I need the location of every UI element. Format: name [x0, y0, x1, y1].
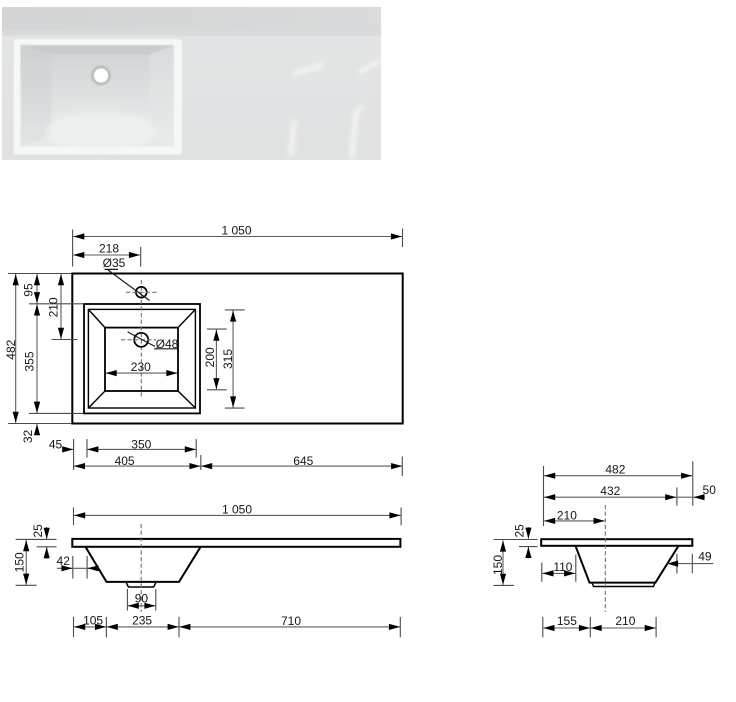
svg-text:230: 230: [131, 360, 151, 374]
svg-text:25: 25: [31, 524, 45, 538]
svg-text:355: 355: [22, 351, 36, 371]
svg-text:210: 210: [615, 614, 635, 628]
svg-text:432: 432: [600, 484, 620, 498]
svg-text:32: 32: [21, 430, 35, 444]
svg-text:Ø48: Ø48: [156, 337, 179, 351]
svg-text:42: 42: [57, 554, 71, 568]
svg-text:200: 200: [203, 347, 217, 367]
svg-text:105: 105: [83, 613, 103, 627]
svg-text:235: 235: [132, 613, 152, 627]
svg-text:482: 482: [605, 463, 625, 477]
svg-text:482: 482: [4, 339, 18, 359]
svg-text:150: 150: [13, 552, 27, 572]
svg-text:49: 49: [698, 550, 712, 564]
svg-text:218: 218: [99, 242, 119, 256]
svg-text:315: 315: [221, 349, 235, 369]
svg-text:210: 210: [557, 509, 577, 523]
svg-text:50: 50: [703, 483, 717, 497]
svg-text:90: 90: [135, 591, 149, 605]
svg-text:405: 405: [115, 454, 135, 468]
svg-text:710: 710: [281, 614, 301, 628]
svg-text:150: 150: [491, 555, 505, 575]
svg-text:1 050: 1 050: [222, 503, 252, 517]
svg-text:45: 45: [49, 438, 63, 452]
svg-text:350: 350: [131, 437, 151, 451]
svg-text:95: 95: [22, 283, 36, 297]
svg-text:110: 110: [553, 560, 572, 574]
svg-text:25: 25: [512, 524, 526, 538]
svg-text:210: 210: [47, 297, 61, 317]
svg-text:645: 645: [293, 454, 313, 468]
svg-text:Ø35: Ø35: [103, 256, 126, 270]
svg-text:1 050: 1 050: [221, 224, 251, 238]
svg-text:155: 155: [557, 614, 577, 628]
